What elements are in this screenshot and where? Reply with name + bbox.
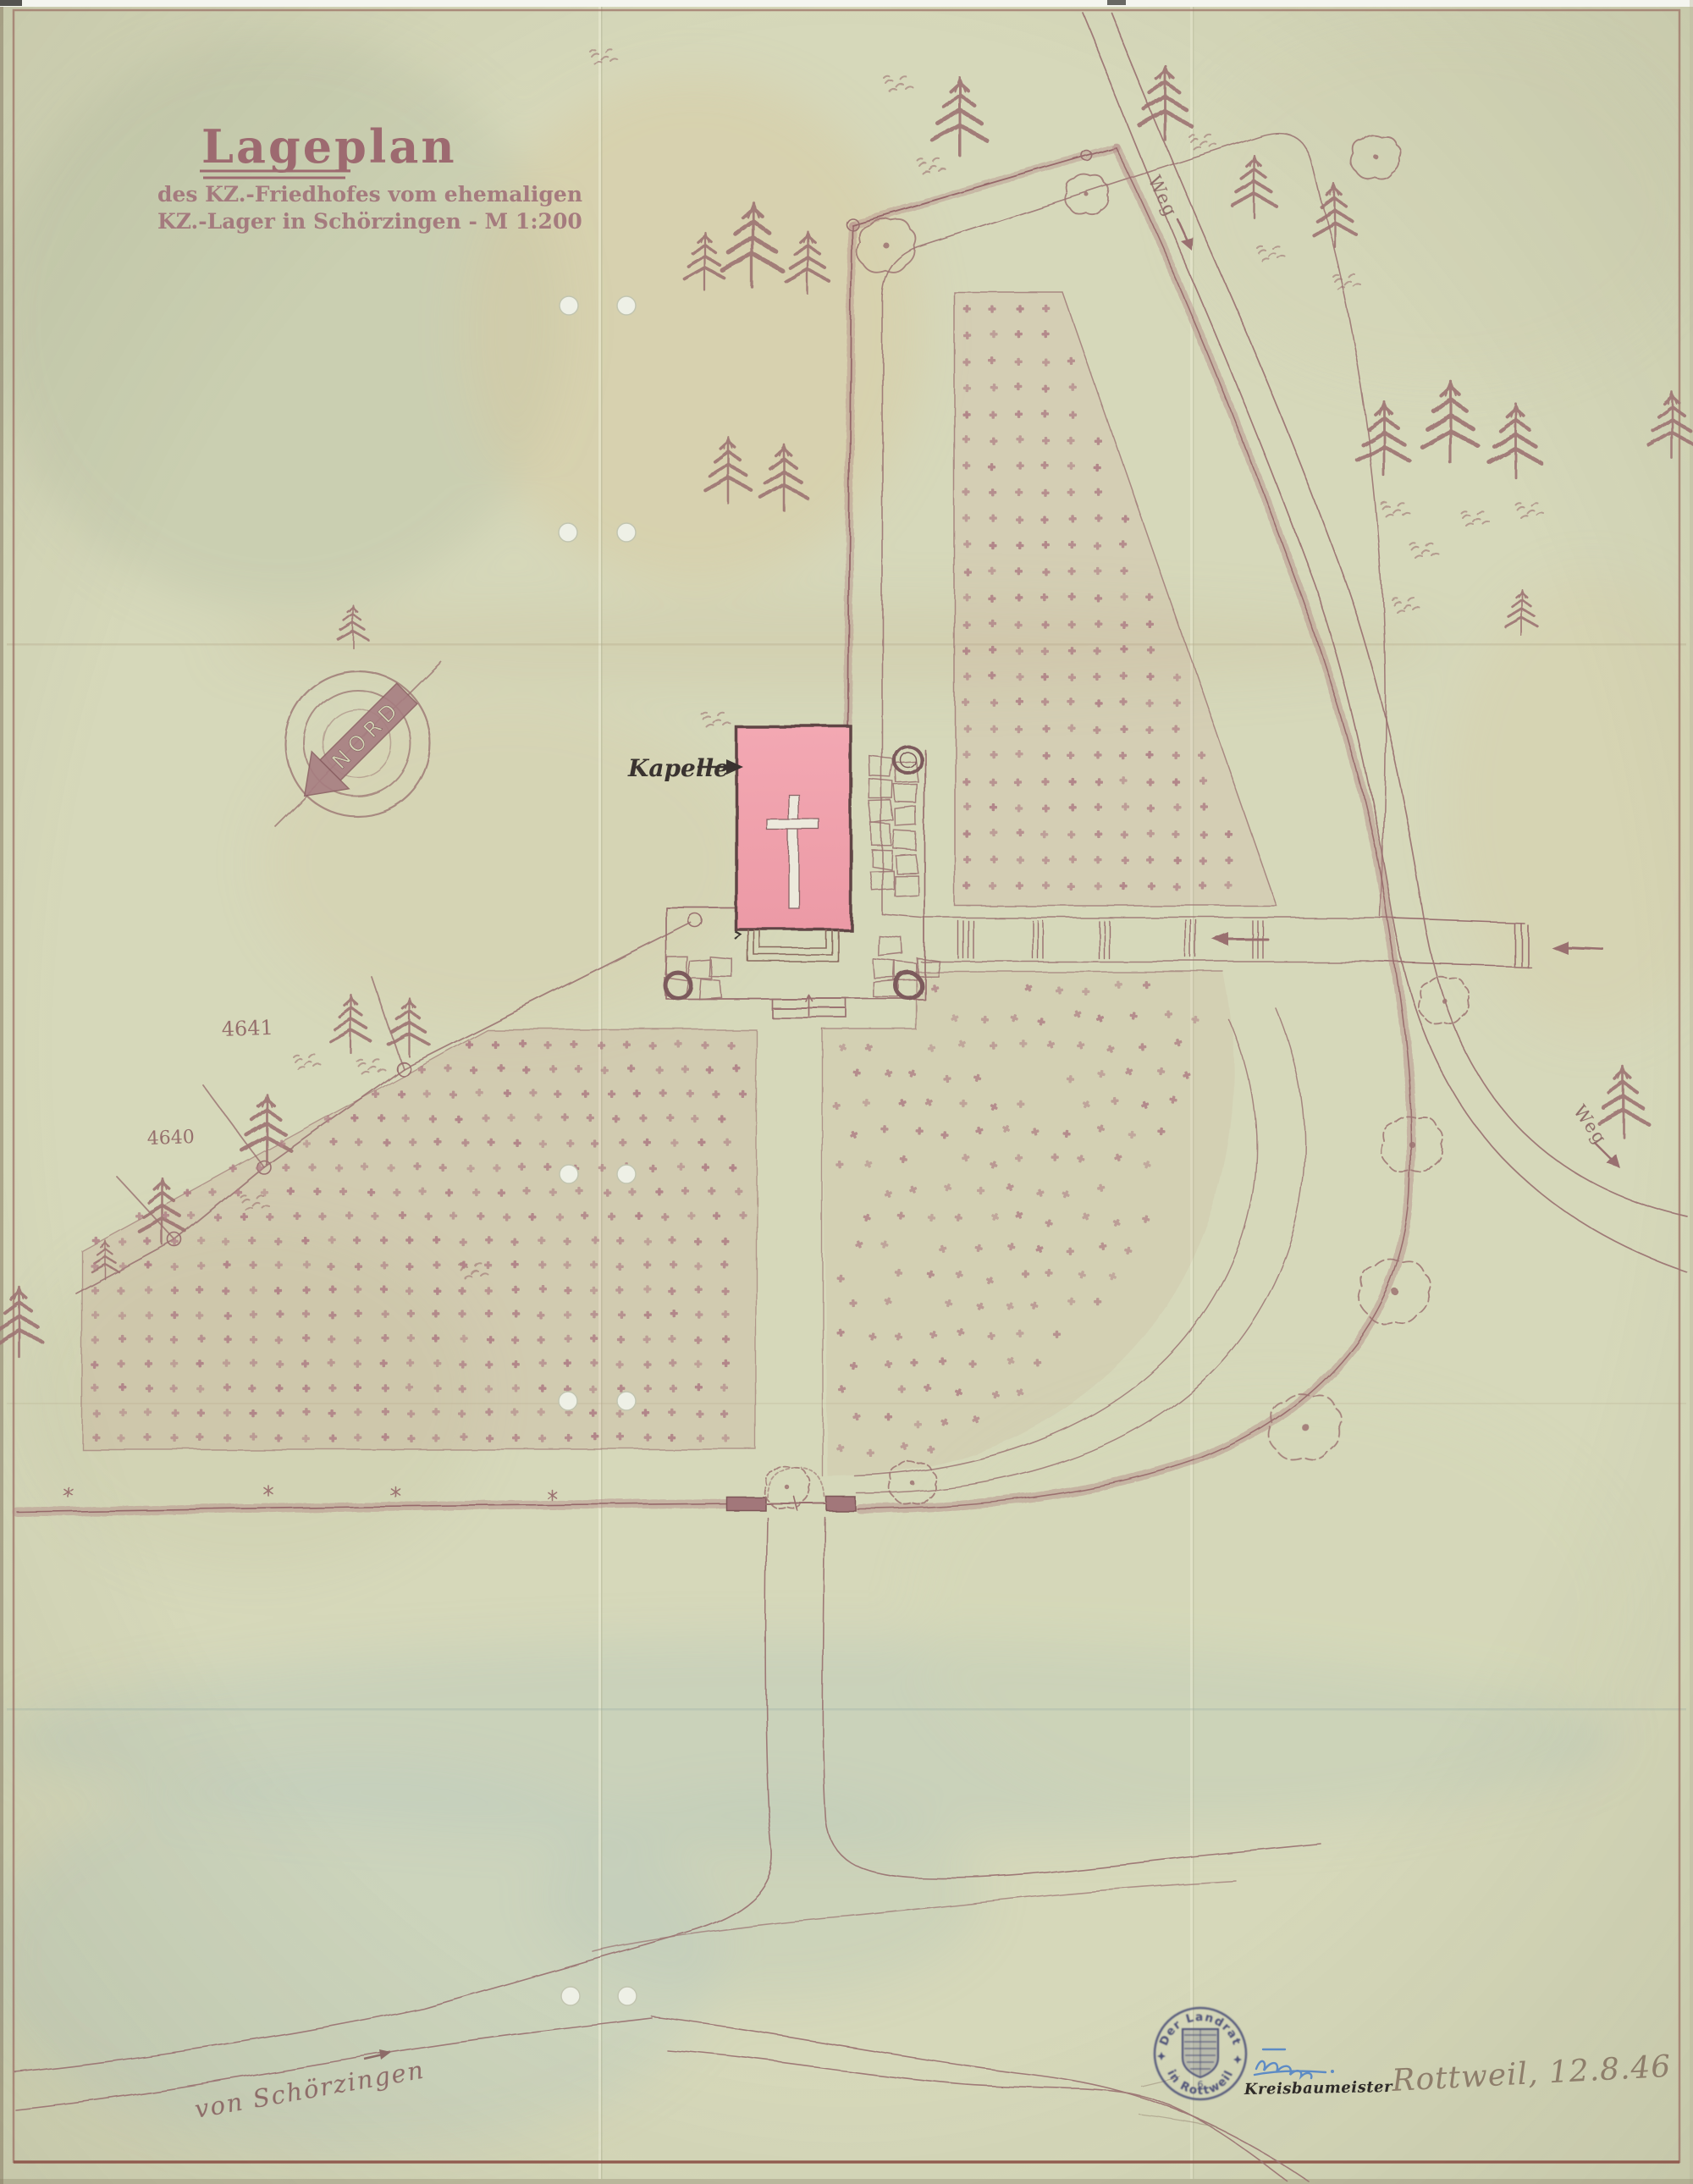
punch-hole	[617, 296, 636, 315]
stamp-digit: 6	[1198, 2079, 1204, 2090]
office-stamp-text: Kreisbaumeister	[1244, 2078, 1393, 2099]
gate-post	[826, 1497, 855, 1510]
scan-edge-top	[0, 0, 1693, 7]
stamp-shield	[1183, 2029, 1218, 2077]
scan-edge-right	[1690, 0, 1693, 2184]
punch-hole	[560, 1165, 578, 1183]
bush-center	[1392, 1288, 1398, 1295]
bush-center	[910, 1481, 914, 1485]
bush-center	[785, 1485, 789, 1489]
punch-hole	[561, 1987, 580, 2005]
subtitle-line1: des KZ.-Friedhofes vom ehemaligen	[157, 182, 582, 207]
bush-center	[1409, 1141, 1415, 1147]
page-title: Lageplan	[201, 119, 457, 174]
bush-center	[1374, 155, 1379, 160]
subtitle-line2: KZ.-Lager in Schörzingen - M 1:200	[157, 209, 582, 234]
punch-hole	[560, 296, 578, 315]
scan-mark	[0, 0, 22, 6]
bush-center	[1442, 998, 1447, 1003]
punch-hole	[618, 1987, 637, 2005]
scan-edge-bottom	[0, 2179, 1693, 2184]
scan-mark	[1107, 0, 1126, 5]
bush-center	[883, 242, 889, 248]
punch-hole	[617, 523, 636, 542]
gate-post	[726, 1497, 765, 1510]
punch-hole	[617, 1165, 636, 1183]
scan-edge-left	[0, 7, 3, 2184]
punch-hole	[559, 1392, 577, 1410]
bush-center	[1084, 192, 1089, 196]
chapel-label: Kapelle	[627, 754, 729, 782]
parcel-number-upper: 4641	[221, 1016, 273, 1041]
punch-hole	[617, 1392, 636, 1410]
chapel-group	[735, 726, 851, 962]
bush-center	[1302, 1424, 1310, 1431]
parcel-number-lower: 4640	[146, 1127, 195, 1150]
plan-sheet: NORD Lageplan des KZ.-Friedhofes vom ehe…	[0, 0, 1693, 2184]
punch-hole	[559, 523, 577, 542]
